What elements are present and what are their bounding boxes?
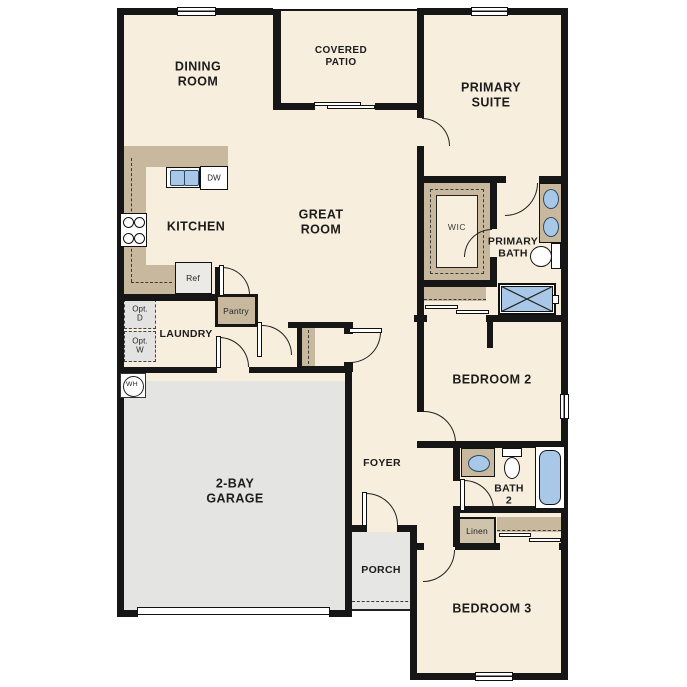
bath2-toilet-bowl bbox=[504, 457, 520, 479]
fixture-label-opt-washer: Opt. W bbox=[132, 337, 148, 356]
closet-dash bbox=[308, 330, 309, 364]
wall bbox=[507, 8, 568, 15]
window-dining bbox=[177, 7, 216, 16]
fixture-label-ref: Ref bbox=[186, 273, 200, 283]
door-leaf-front bbox=[362, 492, 367, 526]
sink-basin-left bbox=[170, 170, 185, 186]
door-leaf-pantry bbox=[219, 265, 224, 296]
primary-toilet-tank bbox=[551, 243, 561, 269]
fixture-label-opt-dryer: Opt. D bbox=[132, 305, 148, 324]
room-label-primary-bath: PRIMARY BATH bbox=[488, 236, 538, 261]
wall bbox=[249, 367, 346, 373]
wall bbox=[124, 294, 215, 301]
burner-icon bbox=[134, 233, 145, 244]
wall bbox=[417, 322, 424, 412]
sink-basin-right bbox=[184, 170, 199, 186]
primary-vanity bbox=[539, 183, 562, 243]
wall bbox=[273, 10, 281, 110]
door-leaf-coat-closet bbox=[349, 328, 382, 333]
vanity-sink-icon bbox=[468, 455, 490, 472]
closet-dash bbox=[497, 530, 561, 531]
wall bbox=[410, 543, 424, 550]
porch-slab-edge bbox=[352, 609, 413, 611]
bathtub bbox=[535, 446, 565, 509]
wall bbox=[486, 315, 561, 322]
kitchen-counter bbox=[146, 265, 176, 295]
room-label-primary-suite: PRIMARY SUITE bbox=[461, 80, 521, 110]
room-label-kitchen: KITCHEN bbox=[167, 220, 225, 235]
burner-icon bbox=[123, 217, 134, 228]
fixture-label-linen: Linen bbox=[466, 526, 488, 536]
kitchen-counter bbox=[124, 146, 228, 167]
window-bedroom3 bbox=[475, 672, 513, 681]
room-label-foyer: FOYER bbox=[363, 457, 401, 469]
room-label-laundry: LAUNDRY bbox=[159, 328, 212, 340]
tub-basin-icon bbox=[539, 450, 561, 505]
room-label-bath-2: BATH 2 bbox=[494, 483, 524, 508]
window-primary-suite bbox=[471, 7, 508, 16]
fixture-label-dw: DW bbox=[207, 173, 221, 182]
bedroom2-closet-slider bbox=[425, 305, 458, 309]
fixture-label-wh: WH bbox=[126, 381, 138, 389]
patio-sliding-door bbox=[314, 102, 361, 106]
vanity-sink-icon bbox=[543, 217, 559, 237]
room-label-dining: DINING ROOM bbox=[175, 59, 221, 89]
counter-dash bbox=[131, 282, 172, 283]
wall bbox=[512, 673, 568, 680]
bedroom3-closet-slider bbox=[499, 533, 531, 537]
room-label-wic: WIC bbox=[448, 222, 466, 232]
door-leaf-laundry-garage bbox=[216, 336, 221, 368]
wall bbox=[417, 280, 497, 287]
wall bbox=[297, 322, 302, 372]
vanity-sink-icon bbox=[543, 189, 559, 209]
wall bbox=[414, 315, 427, 322]
room-label-bedroom-2: BEDROOM 2 bbox=[452, 373, 531, 388]
burner-icon bbox=[134, 217, 145, 228]
shower bbox=[498, 283, 556, 315]
room-label-bedroom-3: BEDROOM 3 bbox=[452, 602, 531, 617]
closet-dash bbox=[424, 299, 486, 300]
floor-plan: DINING ROOM COVERED PATIO PRIMARY SUITE … bbox=[0, 0, 687, 687]
wall bbox=[410, 673, 477, 680]
wall bbox=[215, 8, 273, 15]
bedroom2-closet-slider bbox=[456, 310, 489, 314]
range bbox=[120, 213, 147, 247]
room-label-garage: 2-BAY GARAGE bbox=[206, 476, 263, 506]
fixture-label-pantry: Pantry bbox=[223, 306, 249, 316]
wall bbox=[487, 322, 493, 348]
door-leaf-laundry bbox=[257, 322, 262, 357]
wall bbox=[417, 176, 506, 183]
wall bbox=[561, 8, 568, 395]
shower-door-notch bbox=[552, 295, 559, 304]
shower-pan-icon bbox=[500, 285, 554, 313]
room-label-great-room: GREAT ROOM bbox=[299, 207, 344, 237]
window-bedroom2 bbox=[560, 394, 569, 419]
room-label-porch: PORCH bbox=[361, 564, 400, 576]
wall bbox=[288, 322, 350, 328]
bath2-vanity bbox=[461, 448, 495, 477]
bath2-toilet-tank bbox=[502, 448, 522, 457]
bedroom3-closet-slider bbox=[529, 538, 561, 542]
wall bbox=[417, 146, 424, 316]
garage-door bbox=[137, 607, 330, 615]
burner-icon bbox=[123, 233, 134, 244]
kitchen-sink bbox=[166, 167, 200, 188]
porch-roofline-dash bbox=[352, 601, 413, 602]
wall bbox=[345, 364, 352, 617]
wall bbox=[490, 183, 497, 229]
patio-edge bbox=[273, 9, 424, 11]
room-label-covered-patio: COVERED PATIO bbox=[315, 45, 367, 69]
wall bbox=[453, 443, 460, 481]
wall bbox=[490, 257, 497, 287]
wall bbox=[417, 8, 424, 118]
wall bbox=[424, 8, 472, 15]
wall bbox=[345, 525, 367, 532]
wall bbox=[117, 8, 178, 15]
door-leaf-bath2 bbox=[460, 479, 465, 511]
wall bbox=[117, 8, 124, 617]
